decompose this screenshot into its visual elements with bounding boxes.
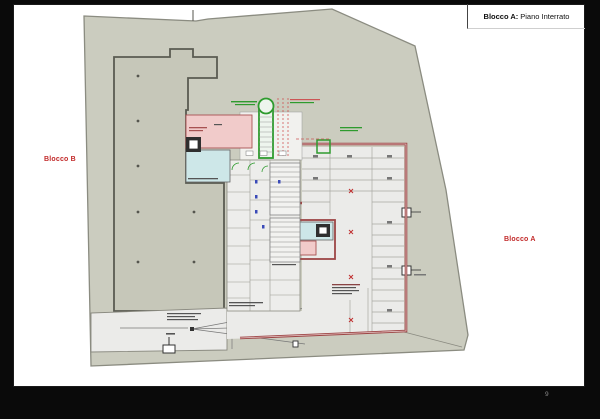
car-lift-ramp (259, 99, 274, 159)
elevator-cab-1 (189, 140, 198, 149)
title-block: Blocco A: Piano Interrato (467, 4, 585, 29)
bottom-access-symbol (293, 341, 298, 347)
ramp-area (91, 308, 227, 352)
page-number: 9 (545, 391, 549, 398)
viewer-stage: Blocco A: Piano Interrato Blocco B Blocc… (0, 0, 600, 419)
ramp-node-marker (190, 327, 194, 331)
title-block-label: Blocco A: (484, 12, 519, 21)
door-label-tags (246, 151, 286, 156)
label-blocco-a: Blocco A (504, 236, 536, 243)
floor-plan-drawing (0, 0, 600, 419)
cyan-room (186, 150, 230, 182)
stair-flight-2 (270, 218, 300, 262)
elevator-cab-2 (319, 227, 327, 234)
label-blocco-b: Blocco B (44, 156, 76, 163)
title-block-title: Piano Interrato (520, 12, 569, 21)
stair-flight-1 (270, 163, 300, 215)
